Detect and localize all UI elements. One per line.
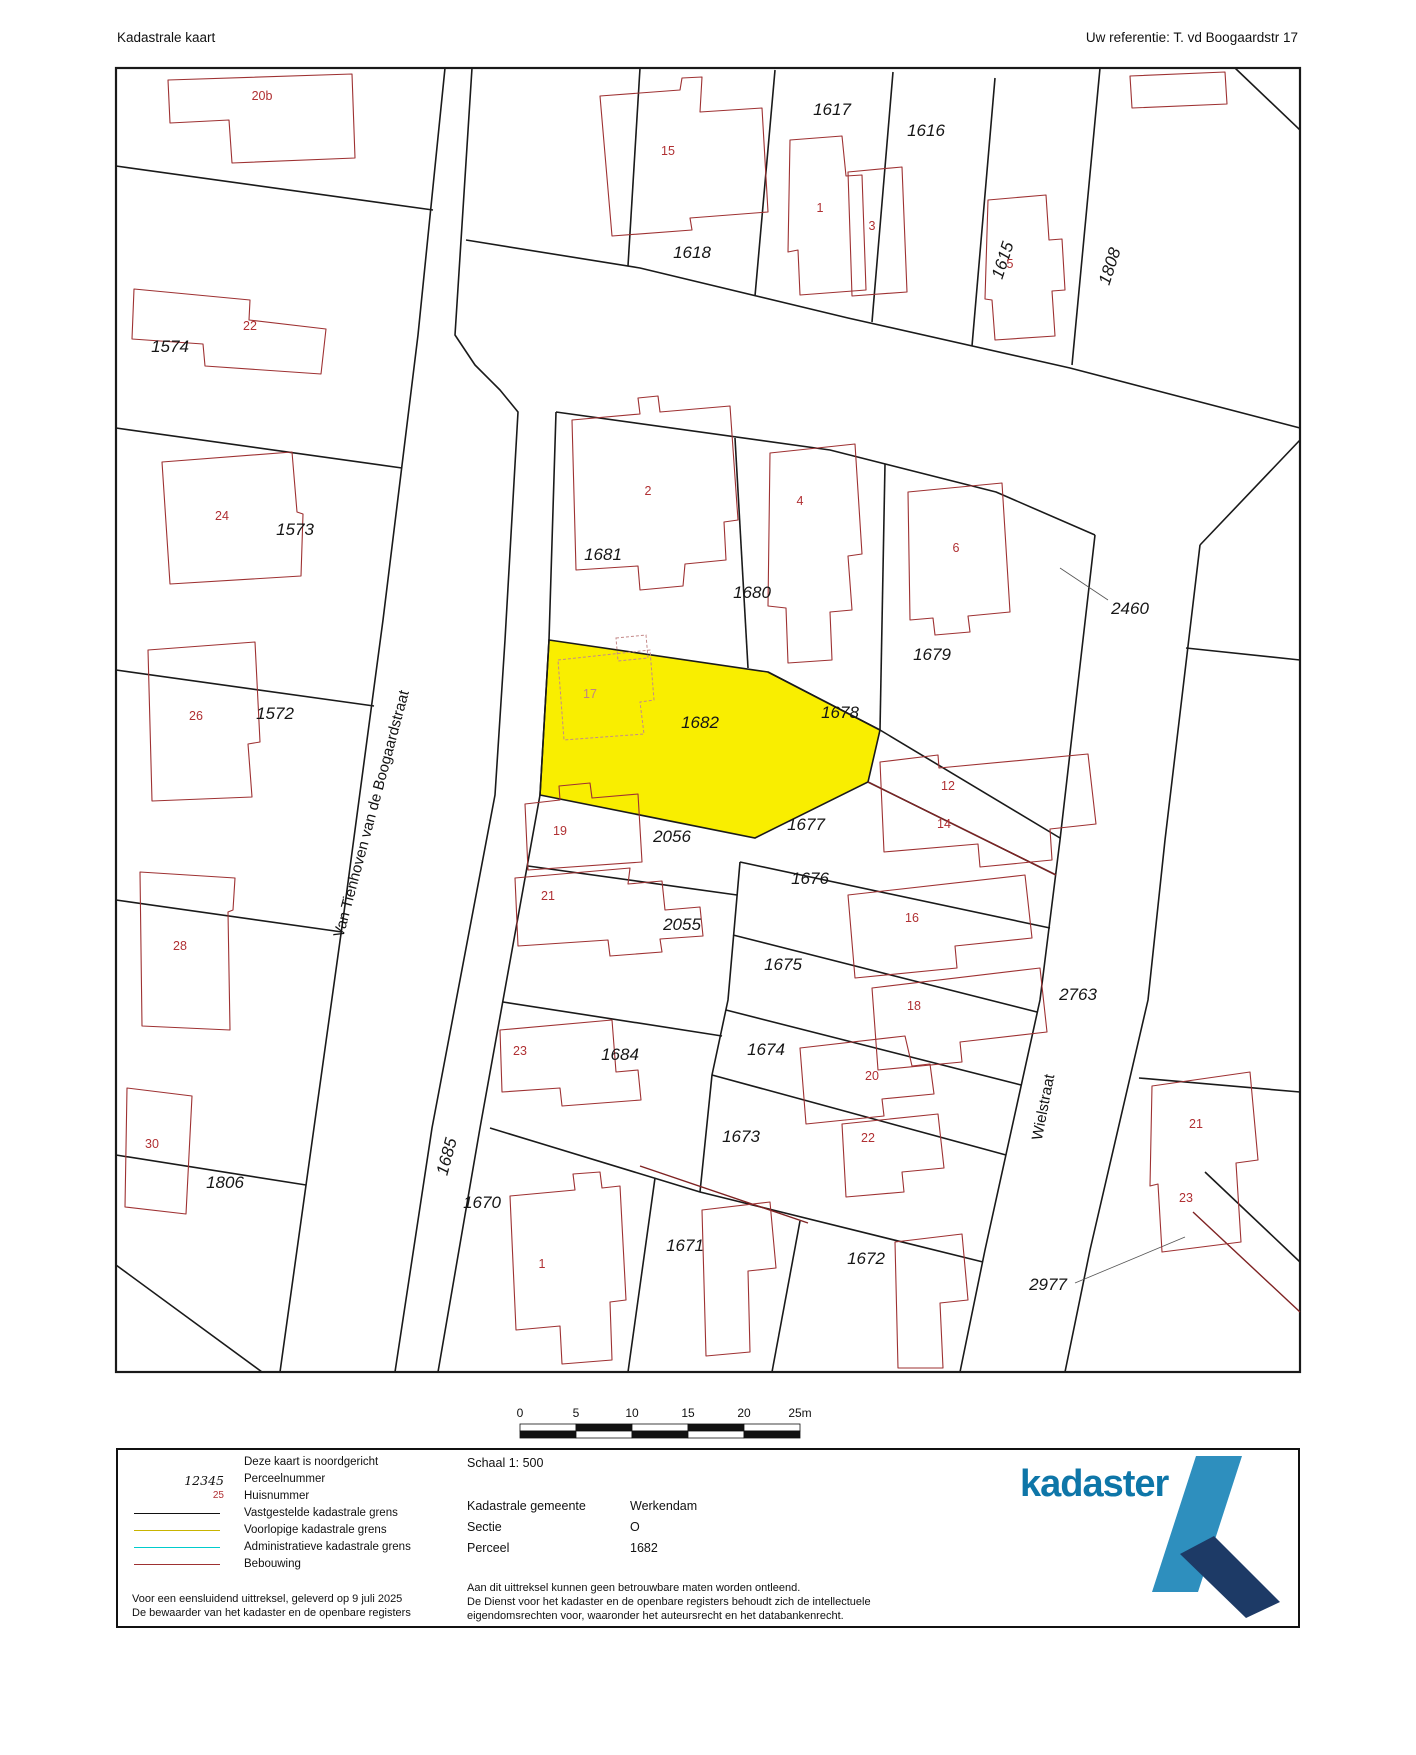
parcel-label-1681: 1681 (584, 545, 622, 564)
legend-sample-perceelnummer: 12345 (132, 1473, 224, 1488)
parcel-label-1677: 1677 (787, 815, 825, 834)
parcel-label-1674: 1674 (747, 1040, 785, 1059)
building-21-23-east (1150, 1072, 1258, 1252)
scale-bar-segment (520, 1424, 576, 1431)
footnote-eensluidend: Voor een eensluidend uittreksel, gelever… (132, 1593, 402, 1605)
house-number-26: 26 (189, 709, 203, 723)
building-22 (132, 289, 326, 374)
house-number-6: 6 (953, 541, 960, 555)
scale-tick-25m: 25m (788, 1406, 811, 1420)
building-15 (600, 77, 768, 236)
disclaimer-line-2: De Dienst voor het kadaster en de openba… (467, 1596, 871, 1608)
parcel-label-1670: 1670 (463, 1193, 501, 1212)
parcel-label-1684: 1684 (601, 1045, 639, 1064)
legend-line-vastgesteld-icon (134, 1513, 220, 1514)
house-number-20: 20 (865, 1069, 879, 1083)
parcel-label-1678: 1678 (821, 703, 859, 722)
kadaster-logo: kadaster (1018, 1452, 1298, 1624)
building-22-south (842, 1114, 944, 1197)
disclaimer-line-3: eigendomsrechten voor, waaronder het aut… (467, 1610, 844, 1622)
house-number-21: 21 (1189, 1117, 1203, 1131)
footer-box: Deze kaart is noordgericht 12345Perceeln… (116, 1448, 1300, 1628)
parcel-label-1672: 1672 (847, 1249, 885, 1268)
disclaimer-line-1: Aan dit uittreksel kunnen geen betrouwba… (467, 1582, 800, 1594)
house-number-4: 4 (797, 494, 804, 508)
parcel-label-1806: 1806 (206, 1173, 244, 1192)
street-name-wielstraat: Wielstraat (1029, 1072, 1059, 1142)
parcel-label-2055: 2055 (662, 915, 701, 934)
highlighted-parcel-1682 (540, 640, 880, 838)
parcel-label-1673: 1673 (722, 1127, 760, 1146)
legend-line-bebouwing-icon (134, 1564, 220, 1565)
house-number-15: 15 (661, 144, 675, 158)
house-number-30: 30 (145, 1137, 159, 1151)
parcel-label-1682: 1682 (681, 713, 719, 732)
parcel-label-1680: 1680 (733, 583, 771, 602)
scale-bar: 0510152025m (517, 1406, 812, 1438)
parcel-label-2460: 2460 (1110, 599, 1149, 618)
building-1671 (702, 1202, 776, 1356)
house-number-16: 16 (905, 911, 919, 925)
house-number-3: 3 (869, 219, 876, 233)
sectie-label: Sectie (467, 1520, 502, 1534)
parcel-label-2977: 2977 (1028, 1275, 1067, 1294)
scale-tick-10: 10 (625, 1406, 639, 1420)
scale-bar-segment (632, 1431, 688, 1438)
gemeente-label: Kadastrale gemeente (467, 1499, 586, 1513)
house-number-23: 23 (513, 1044, 527, 1058)
scale-bar-segment (744, 1431, 800, 1438)
building-18 (872, 968, 1047, 1070)
parcel-label-1574: 1574 (151, 337, 189, 356)
parcel-label-1808: 1808 (1095, 245, 1125, 287)
house-number-22: 22 (243, 319, 257, 333)
scale-tick-0: 0 (517, 1406, 524, 1420)
house-number-12: 12 (941, 779, 955, 793)
house-number-5: 5 (1007, 257, 1014, 271)
house-number-1: 1 (539, 1257, 546, 1271)
parcel-label-2056: 2056 (652, 827, 691, 846)
parcel-label-1671: 1671 (666, 1236, 704, 1255)
house-number-1: 1 (817, 201, 824, 215)
building-26 (148, 642, 260, 801)
footnote-bewaarder: De bewaarder van het kadaster en de open… (132, 1607, 411, 1619)
kadaster-logo-text: kadaster (1020, 1463, 1170, 1505)
parcel-label-2763: 2763 (1058, 985, 1097, 1004)
parcel-label-1679: 1679 (913, 645, 951, 664)
building-6 (908, 483, 1010, 635)
perceel-label: Perceel (467, 1541, 509, 1555)
house-number-28: 28 (173, 939, 187, 953)
parcel-label-1685: 1685 (433, 1135, 461, 1177)
perceel-value: 1682 (630, 1541, 658, 1555)
building-20b (168, 74, 355, 163)
legend-line-voorlopig-icon (134, 1530, 220, 1531)
house-number-19: 19 (553, 824, 567, 838)
house-number-24: 24 (215, 509, 229, 523)
house-number-20b: 20b (252, 89, 273, 103)
parcel-label-1572: 1572 (256, 704, 294, 723)
building-1-north (788, 136, 866, 295)
scale-bar-segment (688, 1431, 744, 1438)
building-3 (848, 167, 907, 296)
house-number-17: 17 (583, 687, 597, 701)
scale-tick-15: 15 (681, 1406, 695, 1420)
house-number-18: 18 (907, 999, 921, 1013)
building-northeast (1130, 72, 1227, 108)
scale-bar-segment (688, 1424, 744, 1431)
parcel-label-1617: 1617 (813, 100, 851, 119)
gemeente-value: Werkendam (630, 1499, 697, 1513)
street-name-van-tienhoven-van-de-boogaardstraat: Van Tienhoven van de Boogaardstraat (330, 688, 413, 939)
legend-line-administratief-icon (134, 1547, 220, 1548)
building-28 (140, 872, 235, 1030)
house-number-23: 23 (1179, 1191, 1193, 1205)
schaal-label: Schaal 1: 500 (467, 1456, 543, 1470)
parcel-label-1616: 1616 (907, 121, 945, 140)
building-21 (515, 868, 703, 956)
building-1672 (895, 1234, 968, 1368)
house-number-14: 14 (937, 817, 951, 831)
scale-bar-segment (576, 1424, 632, 1431)
parcel-label-1618: 1618 (673, 243, 711, 262)
sectie-value: O (630, 1520, 640, 1534)
scale-tick-20: 20 (737, 1406, 751, 1420)
building-24 (162, 452, 303, 584)
parcel-label-1676: 1676 (791, 869, 829, 888)
scale-bar-segment (576, 1431, 632, 1438)
scale-bar-segment (632, 1424, 688, 1431)
parcel-label-1573: 1573 (276, 520, 314, 539)
house-number-21: 21 (541, 889, 555, 903)
parcel-label-1675: 1675 (764, 955, 802, 974)
scale-tick-5: 5 (573, 1406, 580, 1420)
scale-bar-segment (744, 1424, 800, 1431)
building-4 (768, 444, 862, 663)
house-number-2: 2 (645, 484, 652, 498)
building-1-south (510, 1172, 626, 1364)
building-30 (125, 1088, 192, 1214)
legend-sample-huisnummer: 25 (132, 1490, 224, 1501)
scale-bar-segment (520, 1431, 576, 1438)
page: { "header": { "title": "Kadastrale kaart… (0, 0, 1416, 1755)
house-number-22: 22 (861, 1131, 875, 1145)
